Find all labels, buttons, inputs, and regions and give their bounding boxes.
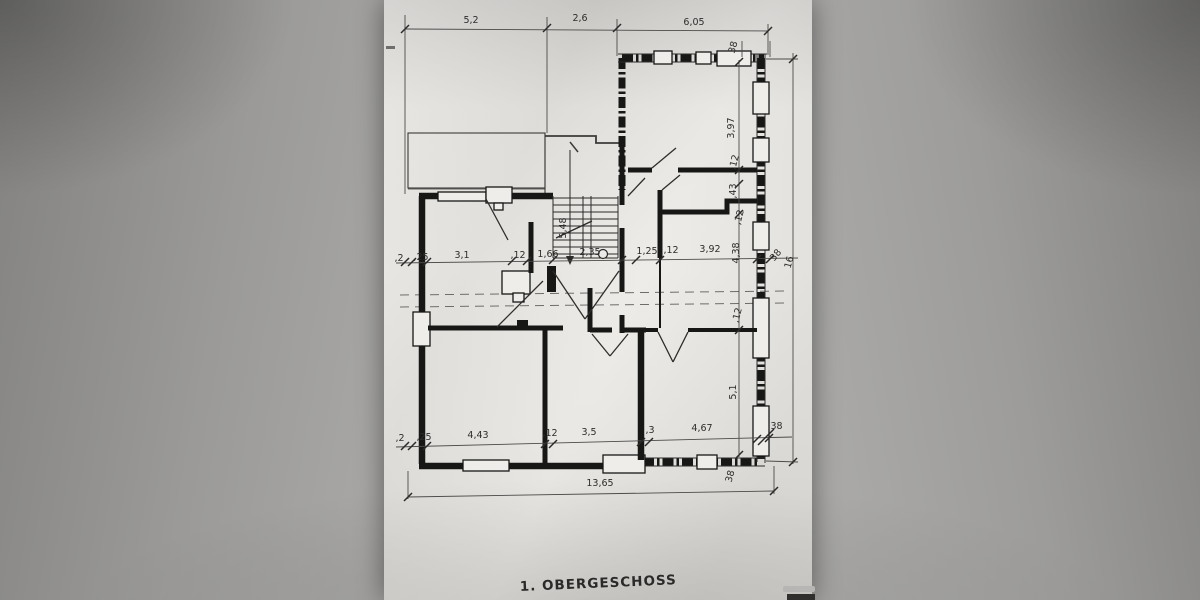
exterior-walls-solid xyxy=(419,196,606,466)
dim-right-7: ,12 xyxy=(730,307,745,324)
dim-stair-run: 5,48 xyxy=(558,217,569,238)
dim-right-6: 4,38 xyxy=(731,242,742,263)
dim-mid-1: ,2 xyxy=(394,253,403,264)
dim-top-1: 5,2 xyxy=(463,15,478,26)
cutoff-print-artifact xyxy=(787,594,815,600)
cutoff-print-smudge xyxy=(783,586,815,592)
dim-mid-9: 3,92 xyxy=(699,244,720,255)
dim-mid-10: 38 xyxy=(768,247,784,263)
plan-title: 1. OBERGESCHOSS xyxy=(519,572,677,595)
dimension-labels: 5,2 2,6 6,05 ,2 ,25 3,1 ,12 1,66 2,35 1,… xyxy=(394,13,796,489)
photo-artifacts xyxy=(386,46,815,600)
dim-low-3: 4,43 xyxy=(467,430,488,441)
dim-low-2: ,25 xyxy=(416,432,431,443)
dim-mid-11: 16 xyxy=(783,255,797,270)
dim-mid-5: 1,66 xyxy=(537,249,558,260)
dim-right-8: 5,1 xyxy=(728,384,739,399)
floor-plan-drawing: 5,2 2,6 6,05 ,2 ,25 3,1 ,12 1,66 2,35 1,… xyxy=(0,0,1200,600)
dim-mid-8: ,12 xyxy=(663,245,678,256)
dim-mid-7: 1,25 xyxy=(636,246,657,257)
dim-low-4: ,12 xyxy=(542,428,557,439)
dim-right-5: ,12 xyxy=(732,209,747,226)
dim-total-width: 13,65 xyxy=(586,478,613,489)
dim-low-1: ,2 xyxy=(395,433,404,444)
dim-mid-2: ,25 xyxy=(413,252,428,263)
dim-mid-4: ,12 xyxy=(510,250,525,261)
photo-background: 5,2 2,6 6,05 ,2 ,25 3,1 ,12 1,66 2,35 1,… xyxy=(0,0,1200,600)
dim-mid-3: 3,1 xyxy=(454,250,469,261)
dim-top-2: 2,6 xyxy=(572,13,587,24)
dim-mid-6: 2,35 xyxy=(579,247,600,258)
paper-edge-mark xyxy=(386,46,395,49)
balcony-outline xyxy=(408,133,620,196)
dim-right-9: 38 xyxy=(724,469,738,484)
dim-low-6: ,3 xyxy=(645,425,654,436)
dim-low-5: 3,5 xyxy=(581,427,596,438)
dim-low-7: 4,67 xyxy=(691,423,712,434)
dim-right-4: ,43 xyxy=(728,183,739,198)
dim-low-8: ,38 xyxy=(767,421,782,432)
dim-right-2: 3,97 xyxy=(726,117,737,138)
dim-top-3: 6,05 xyxy=(683,17,704,28)
